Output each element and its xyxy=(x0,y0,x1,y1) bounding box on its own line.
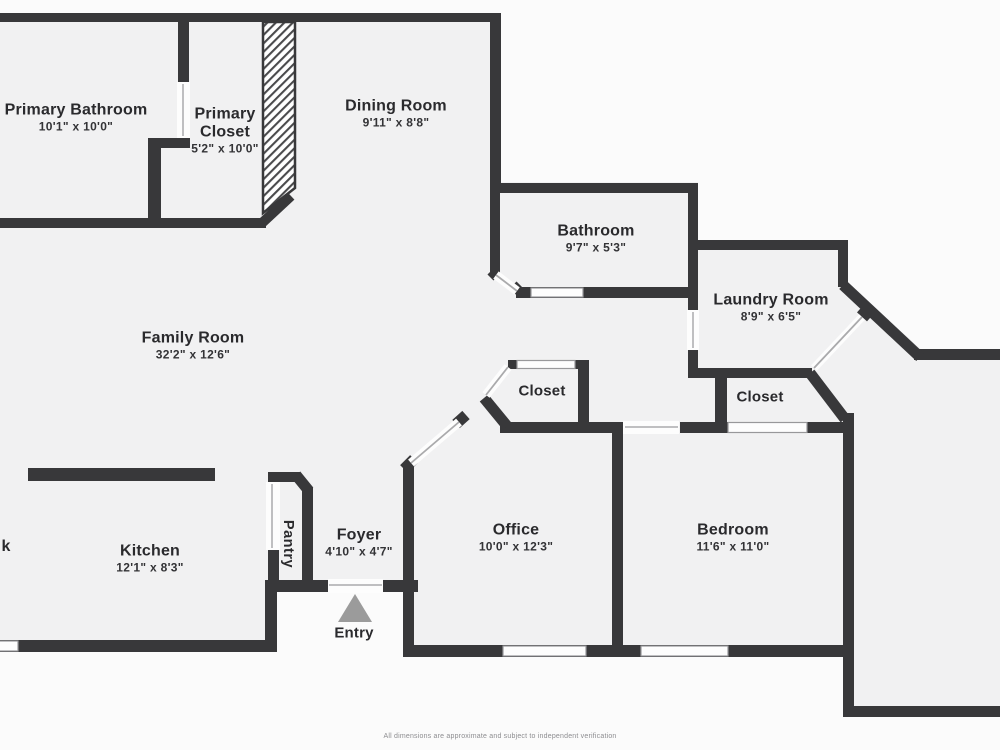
disclaimer-text: All dimensions are approximate and subje… xyxy=(0,733,1000,740)
hatched-wall xyxy=(263,22,295,213)
entry-arrow-icon xyxy=(338,594,372,622)
floor-plan: Primary Bathroom 10'1" x 10'0" Primary C… xyxy=(0,0,1000,750)
floor-plan-canvas xyxy=(0,0,1000,750)
